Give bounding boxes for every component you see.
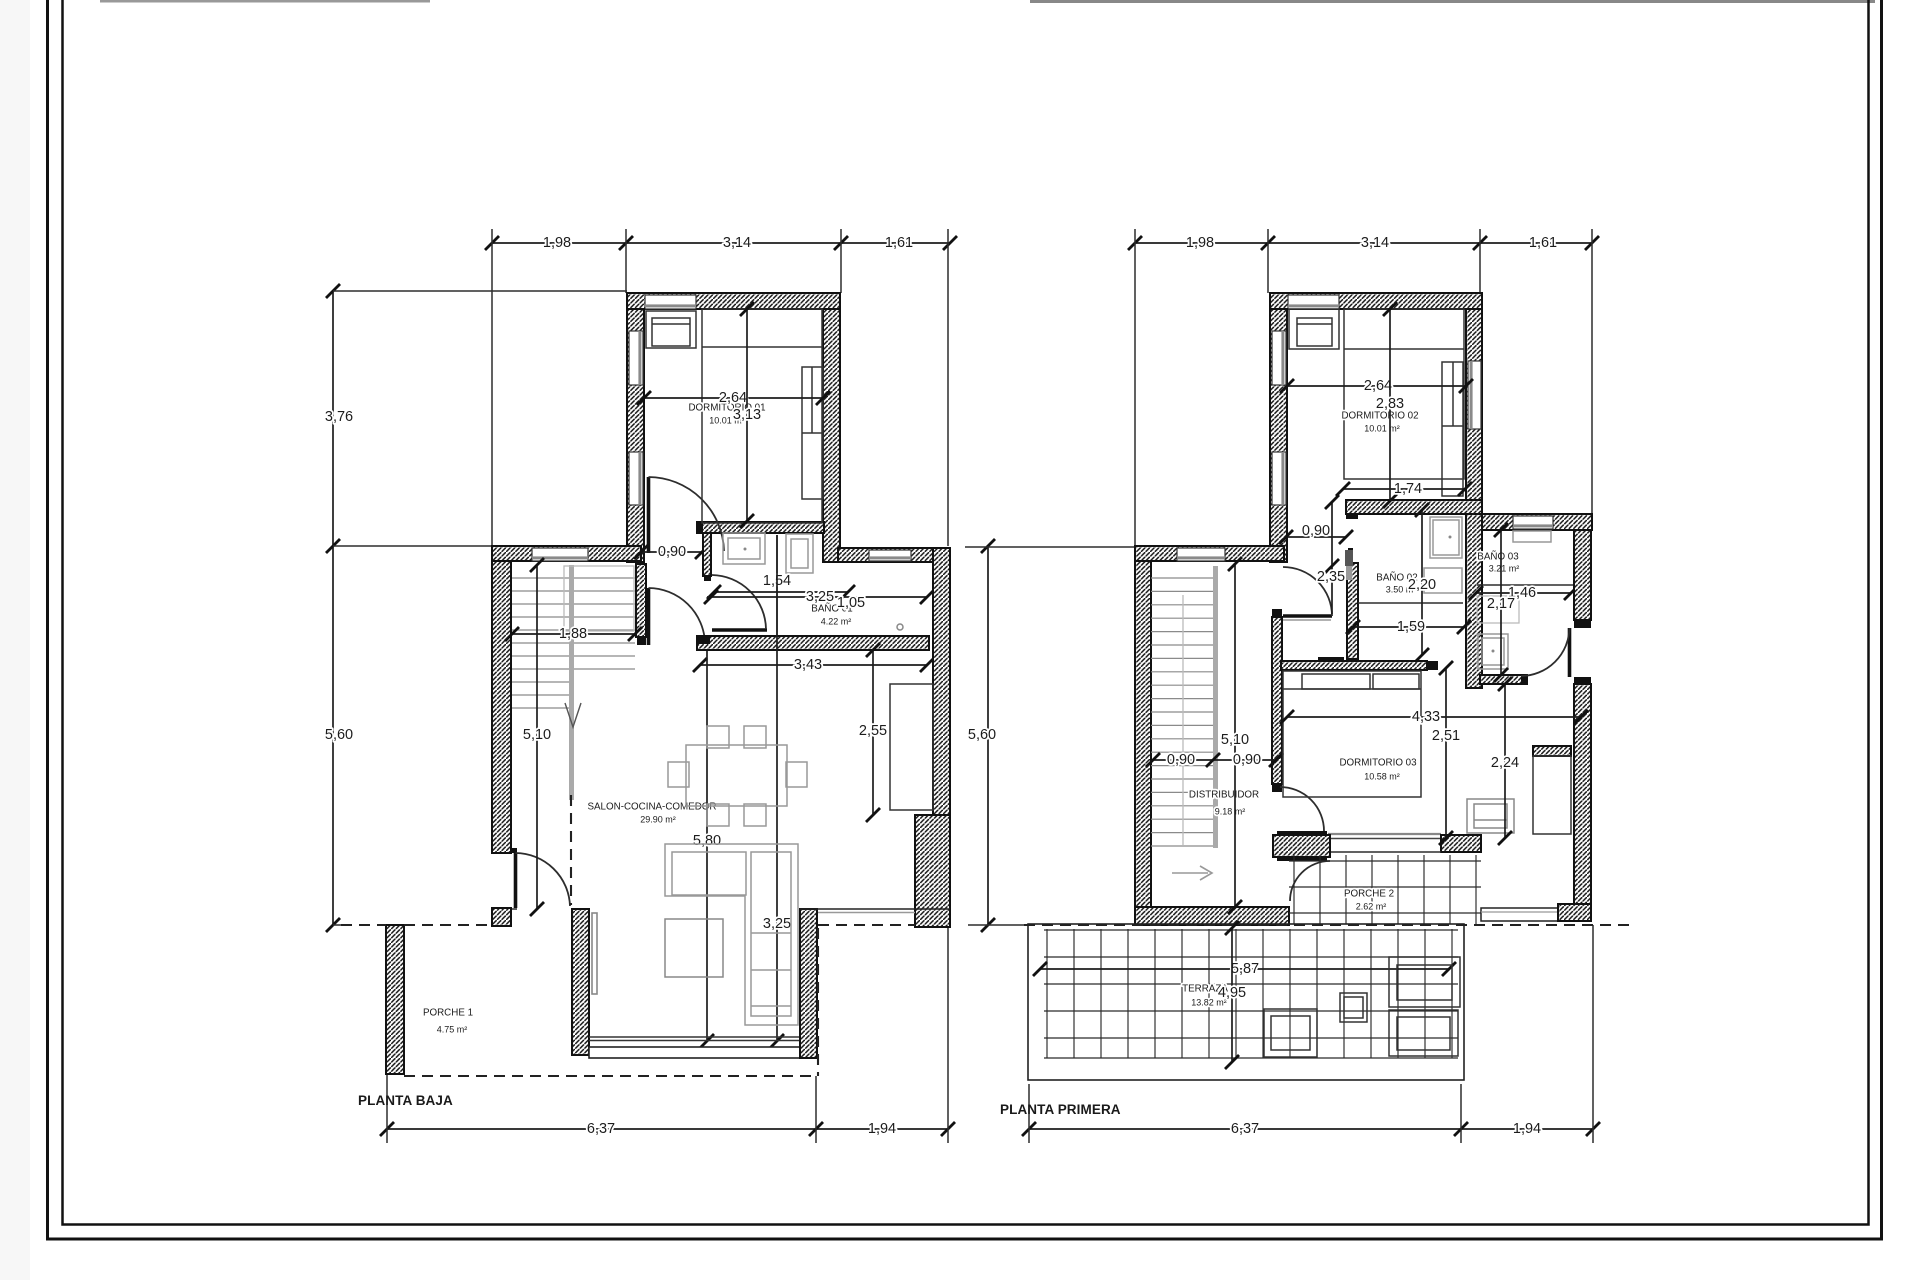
svg-text:2,64: 2,64 (719, 390, 747, 406)
svg-text:DISTRIBUIDOR: DISTRIBUIDOR (1189, 790, 1259, 801)
svg-text:5,60: 5,60 (968, 727, 996, 743)
svg-text:2,20: 2,20 (1408, 577, 1436, 593)
svg-text:1,61: 1,61 (885, 235, 913, 251)
svg-text:2,55: 2,55 (859, 723, 887, 739)
svg-text:4,95: 4,95 (1218, 985, 1246, 1001)
svg-text:1,94: 1,94 (868, 1121, 896, 1137)
svg-text:9.18 m²: 9.18 m² (1215, 806, 1246, 816)
svg-text:5,10: 5,10 (523, 727, 551, 743)
svg-text:1,88: 1,88 (559, 626, 587, 642)
svg-text:5,10: 5,10 (1221, 732, 1249, 748)
svg-text:2,17: 2,17 (1487, 596, 1515, 612)
svg-text:1,59: 1,59 (1397, 619, 1425, 635)
svg-text:PLANTA BAJA: PLANTA BAJA (358, 1093, 453, 1108)
svg-text:2,64: 2,64 (1364, 378, 1392, 394)
svg-text:3,25: 3,25 (806, 589, 834, 605)
svg-text:DORMITORIO 03: DORMITORIO 03 (1339, 758, 1417, 769)
svg-text:1,98: 1,98 (1186, 235, 1214, 251)
svg-text:1,94: 1,94 (1513, 1121, 1541, 1137)
svg-text:3,14: 3,14 (723, 235, 751, 251)
svg-text:PORCHE 1: PORCHE 1 (423, 1008, 473, 1019)
svg-text:DORMITORIO 02: DORMITORIO 02 (1341, 411, 1418, 422)
svg-text:PORCHE 2: PORCHE 2 (1344, 889, 1394, 900)
svg-text:PLANTA PRIMERA: PLANTA PRIMERA (1000, 1102, 1121, 1117)
svg-text:2.62 m²: 2.62 m² (1356, 901, 1387, 911)
svg-text:2,35: 2,35 (1317, 569, 1345, 585)
svg-text:10.01 m²: 10.01 m² (1364, 423, 1400, 433)
svg-text:3,76: 3,76 (325, 409, 353, 425)
svg-text:BAÑO 03: BAÑO 03 (1477, 552, 1519, 563)
svg-text:1,98: 1,98 (543, 235, 571, 251)
svg-text:0,90: 0,90 (1167, 752, 1195, 768)
svg-text:2,24: 2,24 (1491, 755, 1519, 771)
svg-text:1,74: 1,74 (1394, 481, 1422, 497)
svg-text:0,90: 0,90 (658, 544, 686, 560)
svg-text:3,43: 3,43 (794, 657, 822, 673)
svg-text:5,60: 5,60 (325, 727, 353, 743)
svg-text:2,51: 2,51 (1432, 728, 1460, 744)
svg-text:6,37: 6,37 (587, 1121, 615, 1137)
svg-text:5,80: 5,80 (693, 833, 721, 849)
svg-text:4,33: 4,33 (1412, 709, 1440, 725)
svg-text:0,90: 0,90 (1233, 752, 1261, 768)
svg-text:0,90: 0,90 (1302, 523, 1330, 539)
svg-text:29.90 m²: 29.90 m² (640, 814, 676, 824)
svg-text:3,14: 3,14 (1361, 235, 1389, 251)
svg-text:5,87: 5,87 (1231, 961, 1259, 977)
svg-text:1,05: 1,05 (837, 595, 865, 611)
svg-text:2,83: 2,83 (1376, 396, 1404, 412)
svg-text:4.75 m²: 4.75 m² (437, 1024, 468, 1034)
svg-text:3.21 m²: 3.21 m² (1489, 563, 1520, 573)
svg-text:3,25: 3,25 (763, 916, 791, 932)
svg-text:3,13: 3,13 (733, 407, 761, 423)
svg-text:6,37: 6,37 (1231, 1121, 1259, 1137)
svg-text:1,61: 1,61 (1529, 235, 1557, 251)
svg-text:10.58 m²: 10.58 m² (1364, 771, 1400, 781)
svg-text:4.22 m²: 4.22 m² (821, 616, 852, 626)
svg-text:SALON-COCINA-COMEDOR: SALON-COCINA-COMEDOR (587, 802, 716, 813)
